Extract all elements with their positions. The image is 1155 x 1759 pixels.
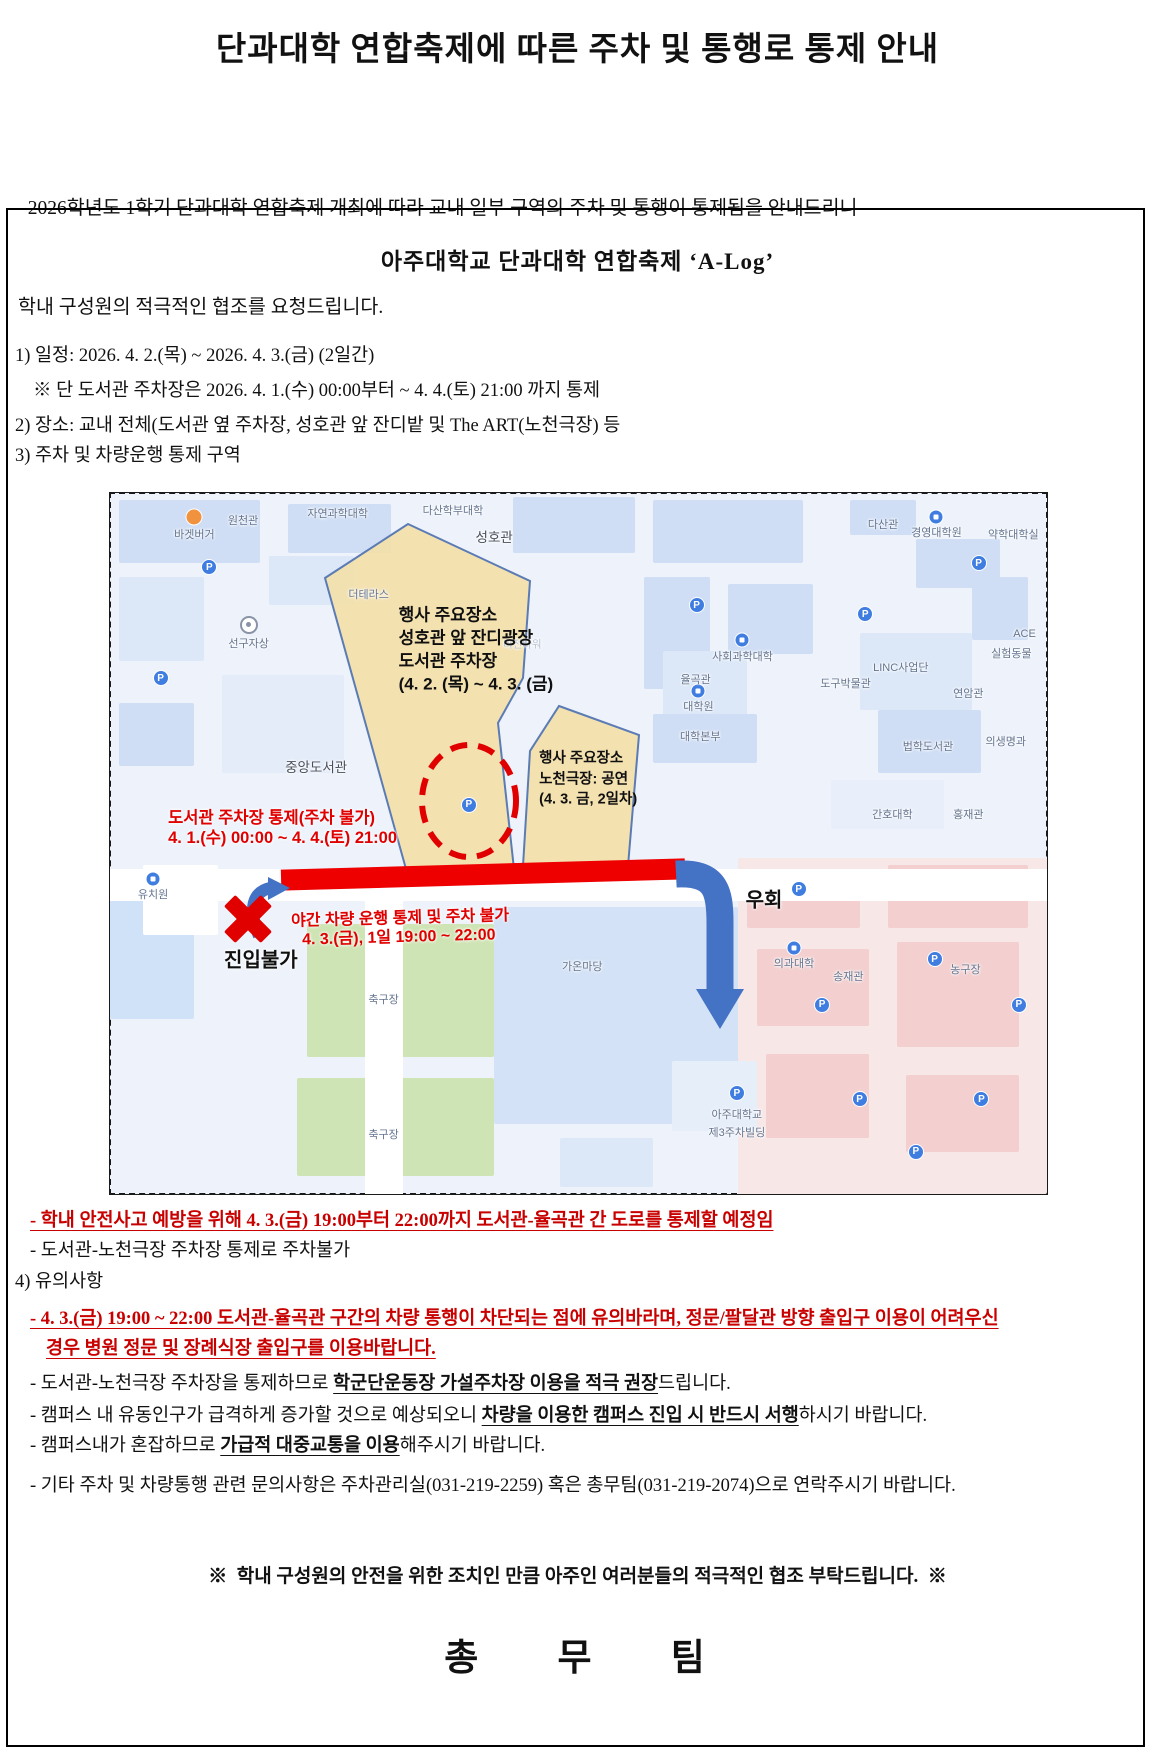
doc-line-segment: - 캠퍼스 내 유동인구가 급격하게 증가할 것으로 예상되오니	[30, 1406, 482, 1426]
page-title: 단과대학 연합축제에 따른 주차 및 통행로 통제 안내	[0, 22, 1155, 70]
map-label: 축구장	[368, 1126, 398, 1142]
map-label: 4. 1.(수) 00:00 ~ 4. 4.(토) 21:00	[168, 824, 397, 848]
doc-line: 4) 유의사항	[15, 1269, 103, 1295]
doc-line-segment: 1) 일정: 2026. 4. 2.(목) ~ 2026. 4. 3.(금) (…	[15, 346, 374, 366]
map-label: 실험동물	[991, 645, 1031, 661]
doc-line: 1) 일정: 2026. 4. 2.(목) ~ 2026. 4. 3.(금) (…	[15, 343, 374, 369]
doc-line: - 캠퍼스 내 유동인구가 급격하게 증가할 것으로 예상되오니 차량을 이용한…	[30, 1403, 927, 1429]
parking-icon: P	[814, 997, 830, 1013]
doc-line-segment: 해주시기 바랍니다.	[400, 1436, 545, 1456]
map-label: 연암관	[953, 685, 983, 701]
map-label: 자연과학대학	[307, 505, 368, 521]
parking-icon: P	[791, 881, 807, 897]
map-label: 진입불가	[224, 943, 298, 972]
parking-icon: P	[201, 559, 217, 575]
doc-line-segment: 학군단운동장 가설주차장 이용을 적극 권장	[333, 1374, 658, 1394]
map-label: ACE	[1013, 628, 1036, 640]
map-label: 간호대학	[872, 806, 912, 822]
map-label: 노천극장: 공연	[539, 767, 628, 788]
map-label: 아주대학교	[712, 1106, 763, 1122]
doc-line: ※ 학내 구성원의 안전을 위한 조치인 만큼 아주인 여러분들의 적극적인 협…	[0, 1564, 1155, 1590]
map-label: 도서관 주차장	[399, 647, 498, 672]
parking-icon: P	[852, 1091, 868, 1107]
map-label: 대학원	[683, 698, 713, 714]
doc-line-segment: 드립니다.	[658, 1374, 731, 1394]
map-label: 선구자상	[228, 635, 268, 651]
doc-line: - 도서관-노천극장 주차장 통제로 주차불가	[30, 1238, 350, 1264]
detour-arrow-head	[696, 989, 744, 1029]
doc-line-segment: 4) 유의사항	[15, 1272, 103, 1292]
map-label: 제3주차빌딩	[708, 1124, 765, 1140]
parking-icon: P	[729, 1085, 745, 1101]
doc-line-segment: 하시기 바랍니다.	[799, 1406, 927, 1426]
map-label: 행사 주요장소	[539, 747, 623, 768]
campus-map: PPPPPPPPPPPPPP 원천관바겟버거자연과학대학다산학부대학성호관다산관…	[109, 492, 1048, 1195]
doc-line-segment: 가급적 대중교통을 이용	[220, 1436, 399, 1456]
building-icon	[787, 940, 802, 955]
doc-line-segment: - 도서관-노천극장 주차장을 통제하므로	[30, 1374, 333, 1394]
parking-icon: P	[461, 797, 477, 813]
doc-line: - 캠퍼스내가 혼잡하므로 가급적 대중교통을 이용해주시기 바랍니다.	[30, 1433, 545, 1459]
parking-icon: P	[908, 1144, 924, 1160]
doc-line-segment: - 학내 안전사고 예방을 위해 4. 3.(금) 19:00부터 22:00까…	[30, 1211, 773, 1231]
building-icon	[735, 633, 750, 648]
doc-line-segment: 총 무 팀	[444, 1638, 711, 1679]
doc-line-segment: - 4. 3.(금) 19:00 ~ 22:00 도서관-율곡관 구간의 차량 …	[30, 1309, 999, 1329]
doc-line: - 기타 주차 및 차량통행 관련 문의사항은 주차관리실(031-219-22…	[30, 1473, 956, 1499]
map-label: 법학도서관	[903, 738, 954, 754]
map-label: 송재관	[833, 968, 863, 984]
building-icon	[146, 871, 161, 886]
map-label: LINC사업단	[873, 659, 928, 675]
map-label: (4. 2. (목) ~ 4. 3. (금)	[399, 669, 554, 694]
map-label: (4. 3. 금, 2일차)	[539, 787, 637, 808]
parking-icon: P	[689, 597, 705, 613]
doc-line-segment: 차량을 이용한 캠퍼스 진입 시 반드시 서행	[482, 1406, 799, 1426]
parking-icon: P	[153, 670, 169, 686]
doc-line: - 도서관-노천극장 주차장을 통제하므로 학군단운동장 가설주차장 이용을 적…	[30, 1371, 731, 1397]
notice-document: 단과대학 연합축제에 따른 주차 및 통행로 통제 안내 2026학년도 1학기…	[0, 0, 1155, 1759]
map-label: 홍재관	[953, 806, 983, 822]
parking-icon: P	[971, 555, 987, 571]
doc-line-segment: 3) 주차 및 차량운행 통제 구역	[15, 446, 241, 466]
map-label: 율곡관	[680, 671, 710, 687]
map-label: 의과대학	[774, 955, 814, 971]
map-label: 행사 주요장소	[399, 600, 498, 625]
doc-line: 총 무 팀	[0, 1646, 1155, 1672]
doc-line-segment: ※ 학내 구성원의 안전을 위한 조치인 만큼 아주인 여러분들의 적극적인 협…	[208, 1566, 947, 1587]
doc-line-segment: - 도서관-노천극장 주차장 통제로 주차불가	[30, 1241, 350, 1261]
doc-line-segment: 2) 장소: 교내 전체(도서관 옆 주차장, 성호관 앞 잔디밭 및 The …	[15, 416, 620, 436]
doc-line: 3) 주차 및 차량운행 통제 구역	[15, 443, 241, 469]
parking-icon: P	[927, 951, 943, 967]
festival-title: 아주대학교 단과대학 연합축제 ‘A-Log’	[0, 242, 1155, 276]
doc-line: ※ 단 도서관 주차장은 2026. 4. 1.(수) 00:00부터 ~ 4.…	[33, 378, 600, 404]
doc-line: - 학내 안전사고 예방을 위해 4. 3.(금) 19:00부터 22:00까…	[30, 1208, 773, 1234]
doc-line: - 4. 3.(금) 19:00 ~ 22:00 도서관-율곡관 구간의 차량 …	[30, 1306, 999, 1332]
map-label: 사회과학대학	[712, 648, 773, 664]
map-label: 바겟버거	[174, 526, 214, 542]
map-label: 대학본부	[680, 728, 720, 744]
map-label: 우회	[746, 884, 783, 913]
map-label: 다산관	[868, 516, 898, 532]
map-label: 의생명과	[986, 733, 1026, 749]
doc-line: 2) 장소: 교내 전체(도서관 옆 주차장, 성호관 앞 잔디밭 및 The …	[15, 413, 620, 439]
doc-line: 경우 병원 정문 및 장례식장 출입구를 이용바랍니다.	[46, 1336, 436, 1362]
doc-line-segment: - 캠퍼스내가 혼잡하므로	[30, 1436, 220, 1456]
map-label: 원천관	[228, 512, 258, 528]
map-label: 축구장	[368, 991, 398, 1007]
doc-line-segment: 경우 병원 정문 및 장례식장 출입구를 이용바랍니다.	[46, 1339, 436, 1359]
monument-icon	[240, 616, 258, 634]
doc-line-segment: ※ 단 도서관 주차장은 2026. 4. 1.(수) 00:00부터 ~ 4.…	[33, 381, 600, 401]
map-label: 성호관	[476, 526, 513, 546]
parking-icon: P	[1011, 997, 1027, 1013]
map-label: 약학대학실	[988, 526, 1039, 542]
map-label: 중앙도서관	[285, 756, 347, 776]
map-label: 다산학부대학	[423, 502, 484, 518]
parking-icon: P	[973, 1091, 989, 1107]
map-label: 성호관 앞 잔디광장	[399, 624, 534, 649]
map-label: 가온마당	[562, 958, 602, 974]
building-icon	[929, 509, 944, 524]
map-label: 경영대학원	[911, 524, 962, 540]
map-label: 더테라스	[348, 586, 388, 602]
map-label: 유치원	[138, 886, 168, 902]
map-label: 도구박물관	[820, 675, 871, 691]
map-label: 농구장	[950, 961, 980, 977]
doc-line-segment: - 기타 주차 및 차량통행 관련 문의사항은 주차관리실(031-219-22…	[30, 1476, 956, 1496]
burger-shop-icon	[186, 508, 203, 525]
parking-icon: P	[857, 606, 873, 622]
